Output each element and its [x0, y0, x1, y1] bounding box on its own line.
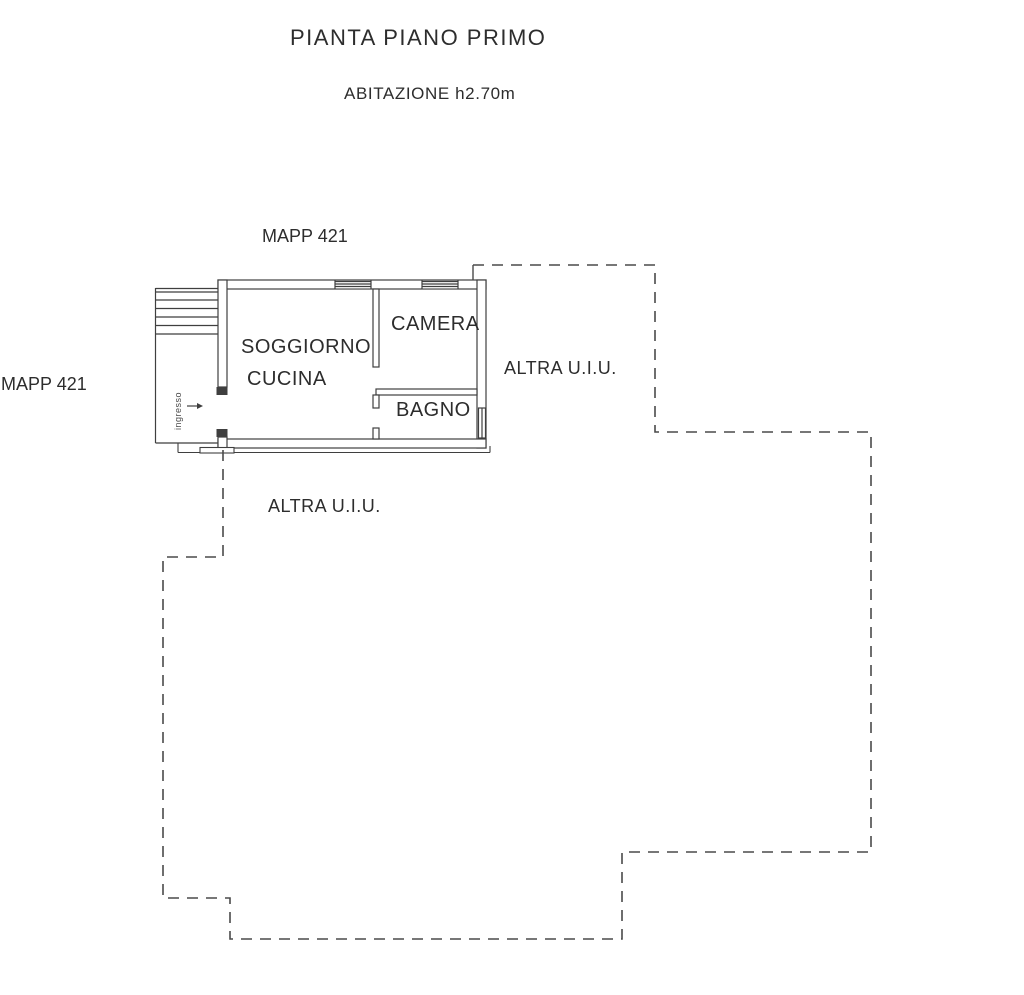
- window-top-right: [422, 281, 458, 290]
- room-label-cucina: CUCINA: [247, 368, 327, 390]
- entrance-label: ingresso: [174, 392, 184, 430]
- mapp-421-label-left: MAPP 421: [1, 375, 87, 395]
- exterior-walls: [218, 280, 486, 448]
- window-bathroom: [479, 408, 486, 438]
- floorplan-drawing: [0, 0, 1024, 995]
- staircase: [156, 288, 219, 443]
- altra-uiu-label-right: ALTRA U.I.U.: [504, 359, 617, 379]
- floorplan-sheet: PIANTA PIANO PRIMO ABITAZIONE h2.70m MAP…: [0, 0, 1024, 995]
- room-label-camera: CAMERA: [391, 313, 480, 335]
- entrance-arrow-icon: [187, 403, 203, 409]
- entrance-door-jambs: [217, 387, 228, 437]
- room-label-soggiorno: SOGGIORNO: [241, 336, 371, 358]
- window-top-left: [335, 281, 371, 290]
- room-label-bagno: BAGNO: [396, 399, 471, 421]
- altra-uiu-label-bottom: ALTRA U.I.U.: [268, 497, 381, 517]
- mapp-421-label-top: MAPP 421: [262, 227, 348, 247]
- page-subtitle: ABITAZIONE h2.70m: [344, 85, 515, 104]
- page-title: PIANTA PIANO PRIMO: [290, 26, 546, 50]
